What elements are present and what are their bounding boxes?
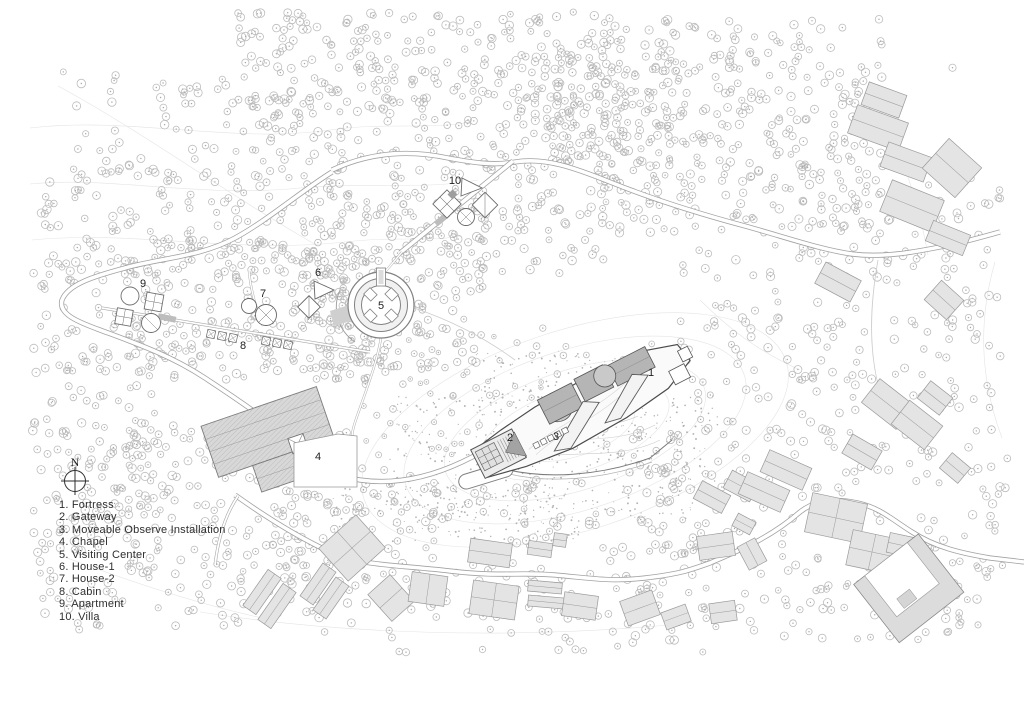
marker-cabin: 8 <box>240 340 246 352</box>
marker-gateway: 2 <box>507 432 513 444</box>
legend-item-house-2: 7. House-2 <box>59 573 226 585</box>
legend-item-villa: 10. Villa <box>59 611 226 623</box>
chapel-plaza <box>294 434 357 487</box>
marker-apartment: 9 <box>140 278 146 290</box>
legend-item-visiting-center: 5. Visiting Center <box>59 549 226 561</box>
marker-house-1: 6 <box>315 267 321 279</box>
legend-item-house-1: 6. House-1 <box>59 561 226 573</box>
marker-fortress: 1 <box>648 367 654 379</box>
village-building <box>697 532 736 561</box>
legend-item-gateway: 2. Gateway <box>59 511 226 523</box>
north-label: N <box>71 455 80 469</box>
village-building <box>553 533 568 548</box>
legend-item-cabin: 8. Cabin <box>59 586 226 598</box>
village-building <box>709 600 738 623</box>
entrance-stair <box>379 270 384 284</box>
legend-item-moveable-observe-installation: 3. Moveable Observe Installation <box>59 524 226 536</box>
village-building <box>527 540 553 557</box>
marker-moveable-observe-installation: 3 <box>553 431 559 443</box>
legend-item-fortress: 1. Fortress <box>59 499 226 511</box>
marker-chapel: 4 <box>315 451 321 463</box>
marker-house-2: 7 <box>260 288 266 300</box>
village-building <box>408 572 448 607</box>
village-building <box>469 580 519 620</box>
legend: 1. Fortress 2. Gateway 3. Moveable Obser… <box>59 499 226 623</box>
site-plan-page: 1 2 3 4 5 6 7 8 9 10 N 1. Fortress 2. Ga… <box>0 0 1024 717</box>
village-building <box>561 592 598 620</box>
legend-item-chapel: 4. Chapel <box>59 536 226 548</box>
marker-villa: 10 <box>449 175 461 187</box>
marker-visiting-center: 5 <box>378 300 384 312</box>
legend-item-apartment: 9. Apartment <box>59 598 226 610</box>
